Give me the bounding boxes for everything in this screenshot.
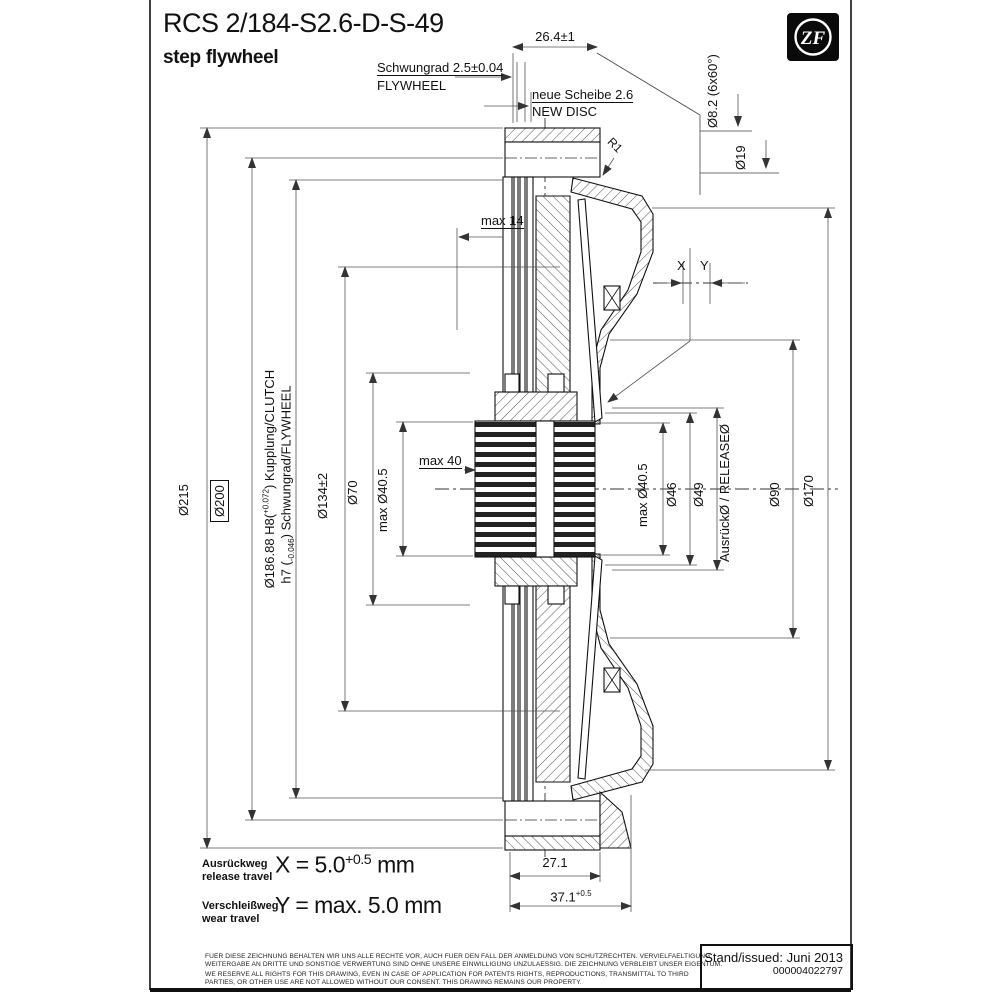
dim-dowel-hole: Ø19 [733, 145, 748, 170]
flywheel-thickness-label-de: Schwungrad 2.5±0.04 [377, 60, 503, 76]
wear-travel-label-de: Verschleißweg [202, 900, 278, 912]
step-profile-lines [597, 53, 779, 195]
dim-hub-diameter: Ø70 [345, 480, 360, 505]
travel-x-marker: X [677, 258, 686, 273]
dim-flywheel-fit: h7 (-0.046) Schwungrad/FLYWHEEL [278, 385, 299, 583]
release-travel-label-de: Ausrückweg [202, 858, 267, 870]
dim-inner2-diameter: Ø49 [691, 482, 706, 507]
issue-date: Stand/issued: Juni 2013 [702, 950, 843, 965]
drawing-code: RCS 2/184-S2.6-D-S-49 [163, 16, 444, 31]
diaphragm-spring [578, 199, 602, 422]
dim-total-width: 37.1+0.5 [516, 886, 626, 904]
release-travel-formula: X = 5.0+0.5 mm [275, 853, 414, 873]
zf-logo-emblem: ZF [787, 13, 839, 61]
dim-bolt-holes: Ø8.2 (6x60°) [705, 54, 720, 128]
dim-max-depth: max 14 [481, 213, 524, 229]
issue-box: Stand/issued: Juni 2013 000004022797 [700, 944, 853, 990]
dim-friction-diameter: Ø200 [210, 480, 229, 522]
legal-text-de-2: WEITERGABE AN DRITTE UND SONSTIGE VERWER… [205, 961, 722, 969]
legal-text-en-1: WE RESERVE ALL RIGHTS FOR THIS DRAWING, … [205, 971, 689, 979]
hub-flange [495, 392, 577, 421]
hub-bore [536, 421, 554, 557]
legal-text-de-1: FUER DIESE ZEICHNUNG BEHALTEN WIR UNS AL… [205, 953, 712, 961]
release-travel-label-en: release travel [202, 871, 272, 883]
clutch-section-upper-half [495, 128, 653, 439]
wear-travel-label-en: wear travel [202, 913, 259, 925]
travel-y-marker: Y [700, 258, 709, 273]
dim-clutch-fit: Ø186.88 H8(+0.072) Kupplung/CLUTCH [259, 370, 277, 589]
zf-logo-letters: ZF [800, 28, 826, 49]
legal-text-en-2: PARTIES, OR OTHER USE ARE NOT ALLOWED WI… [205, 979, 582, 987]
flywheel-step [600, 792, 631, 848]
dim-outer-diameter: Ø215 [176, 484, 191, 516]
drawing-type: step flywheel [163, 50, 278, 65]
dim-cover-diameter: Ø170 [801, 475, 816, 507]
wear-travel-formula: Y = max. 5.0 mm [275, 898, 442, 913]
flywheel-rim [505, 128, 600, 142]
zf-logo: ZF [787, 13, 839, 61]
flywheel-thickness-label-en: FLYWHEEL [377, 78, 446, 93]
dim-bolt-circle: Ø134±2 [315, 473, 330, 519]
dim-spline-diameter-left: max Ø40.5 [375, 468, 390, 532]
dim-width-top: 26.4±1 [513, 29, 597, 44]
drawing-number: 000004022797 [702, 965, 843, 977]
dim-max-hub-width: max 40 [419, 453, 462, 469]
new-disc-label-en: NEW DISC [532, 104, 597, 119]
new-disc-label-de: neue Scheibe 2.6 [532, 87, 633, 103]
engineering-drawing-sheet: RCS 2/184-S2.6-D-S-49 step flywheel ZF S… [0, 0, 1000, 1000]
dim-rim-width: 27.1 [510, 855, 600, 870]
dim-inner1-diameter: Ø46 [664, 482, 679, 507]
dim-spline-diameter-right: max Ø40.5 [635, 463, 650, 527]
dim-spring-diameter: Ø90 [767, 482, 782, 507]
clutch-section-lower-half [495, 539, 653, 850]
dim-release-diameter-label: AusrückØ / RELEASEØ [717, 424, 732, 562]
drawing-canvas [0, 0, 1000, 1000]
